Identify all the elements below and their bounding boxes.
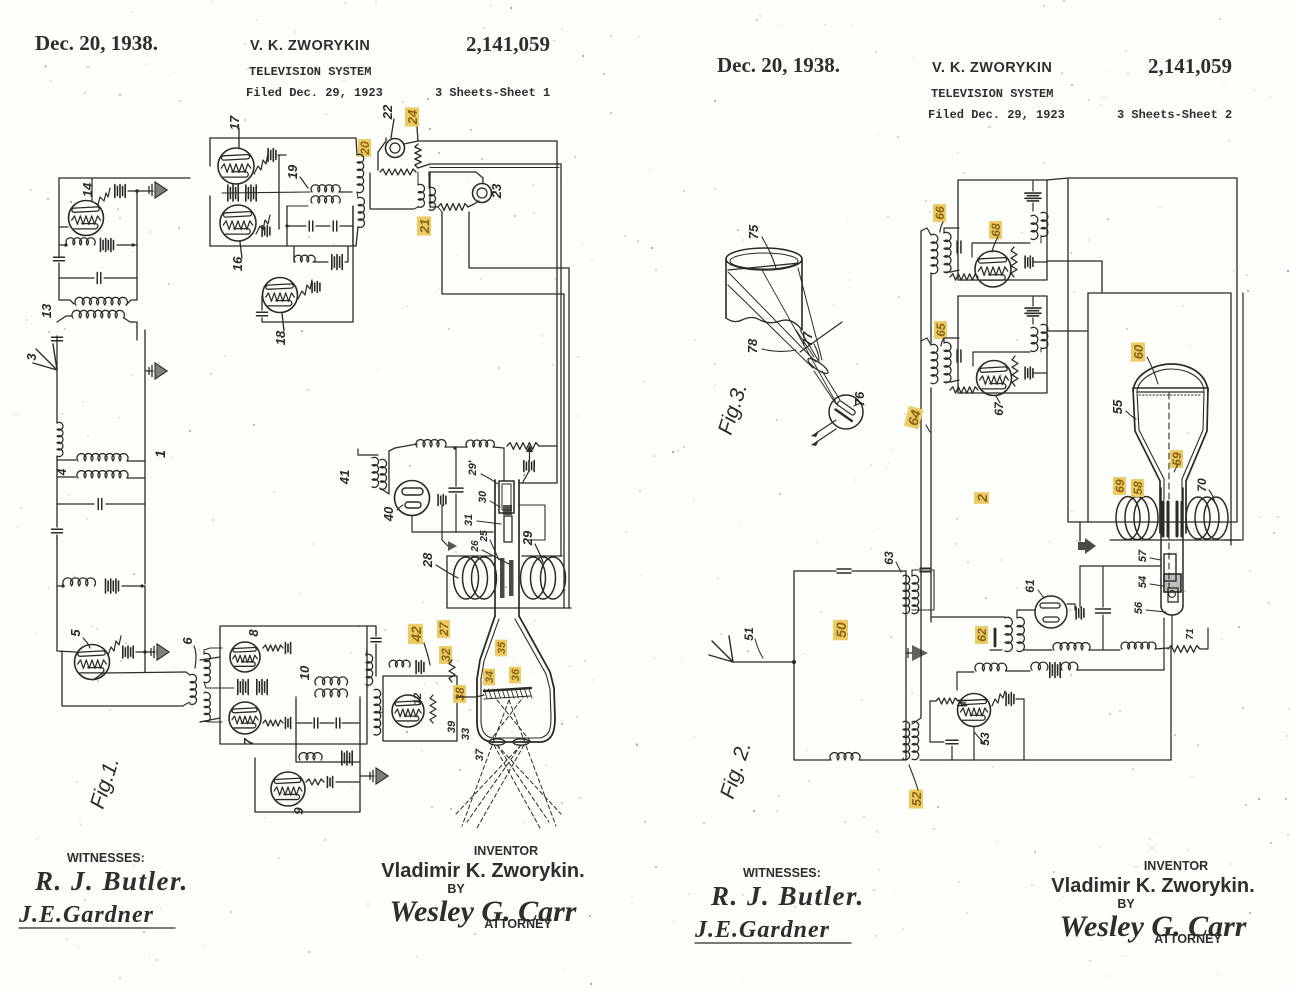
- svg-text:Dec. 20, 1938.: Dec. 20, 1938.: [717, 53, 840, 77]
- svg-text:77: 77: [800, 331, 815, 346]
- svg-text:61: 61: [1023, 579, 1037, 593]
- svg-text:14: 14: [80, 182, 95, 197]
- svg-text:TELEVISION SYSTEM: TELEVISION SYSTEM: [249, 65, 371, 79]
- svg-text:3 Sheets-Sheet 2: 3 Sheets-Sheet 2: [1117, 108, 1232, 122]
- svg-text:Filed Dec. 29, 1923: Filed Dec. 29, 1923: [246, 86, 383, 100]
- svg-text:ATTORNEY: ATTORNEY: [484, 917, 552, 931]
- svg-text:R. J. Butler.: R. J. Butler.: [710, 881, 865, 911]
- svg-text:1: 1: [152, 450, 168, 458]
- svg-text:13: 13: [39, 303, 54, 318]
- svg-text:5: 5: [68, 629, 83, 637]
- svg-text:38: 38: [453, 687, 467, 701]
- svg-text:2,141,059: 2,141,059: [466, 32, 550, 56]
- svg-text:32: 32: [439, 648, 453, 662]
- svg-text:41: 41: [337, 470, 352, 485]
- svg-text:65: 65: [934, 323, 948, 337]
- svg-text:31: 31: [463, 514, 475, 526]
- svg-text:12: 12: [412, 693, 424, 705]
- svg-text:17: 17: [227, 115, 242, 130]
- svg-text:Fig.3.: Fig.3.: [714, 380, 752, 437]
- svg-text:2: 2: [974, 494, 990, 503]
- svg-text:Dec. 20, 1938.: Dec. 20, 1938.: [35, 31, 158, 55]
- svg-text:8: 8: [246, 629, 261, 637]
- svg-text:58: 58: [1131, 481, 1145, 495]
- svg-text:3 Sheets-Sheet 1: 3 Sheets-Sheet 1: [435, 86, 550, 100]
- svg-text:TELEVISION SYSTEM: TELEVISION SYSTEM: [931, 87, 1053, 101]
- svg-text:7: 7: [241, 738, 256, 746]
- svg-text:21: 21: [417, 219, 432, 234]
- svg-text:R. J. Butler.: R. J. Butler.: [34, 866, 189, 896]
- svg-text:3: 3: [24, 353, 39, 361]
- svg-text:75: 75: [746, 224, 761, 239]
- svg-text:24: 24: [405, 109, 420, 125]
- svg-text:9: 9: [291, 807, 306, 815]
- svg-text:19: 19: [285, 164, 300, 179]
- svg-text:18: 18: [273, 330, 288, 345]
- svg-text:39: 39: [446, 720, 458, 733]
- svg-text:52: 52: [909, 791, 924, 806]
- svg-text:29′: 29′: [467, 459, 479, 476]
- svg-text:50: 50: [833, 622, 849, 638]
- svg-text:54: 54: [1137, 576, 1149, 588]
- svg-text:22: 22: [380, 104, 395, 120]
- svg-text:36: 36: [510, 668, 522, 681]
- svg-text:71: 71: [1185, 628, 1196, 640]
- svg-text:69: 69: [1113, 479, 1127, 493]
- svg-text:27: 27: [437, 621, 451, 637]
- svg-text:35: 35: [496, 641, 508, 654]
- svg-text:23: 23: [489, 183, 504, 199]
- svg-text:66: 66: [933, 206, 947, 220]
- svg-text:6: 6: [180, 637, 195, 645]
- svg-text:Filed Dec. 29, 1923: Filed Dec. 29, 1923: [928, 108, 1065, 122]
- svg-text:51: 51: [742, 627, 756, 641]
- svg-text:60: 60: [1131, 344, 1146, 359]
- svg-text:29: 29: [520, 530, 535, 546]
- svg-text:42: 42: [408, 626, 424, 643]
- svg-text:26: 26: [470, 540, 481, 553]
- svg-text:63: 63: [882, 551, 896, 565]
- svg-text:2,141,059: 2,141,059: [1148, 54, 1232, 78]
- svg-text:Fig.1.: Fig.1.: [86, 754, 124, 811]
- svg-text:ATTORNEY: ATTORNEY: [1154, 932, 1222, 946]
- svg-text:BY: BY: [447, 882, 465, 896]
- svg-text:67: 67: [992, 401, 1006, 416]
- svg-text:Vladimir K. Zworykin.: Vladimir K. Zworykin.: [1051, 875, 1254, 897]
- svg-text:WITNESSES:: WITNESSES:: [67, 851, 145, 865]
- svg-text:Fig. 2.: Fig. 2.: [716, 739, 756, 802]
- svg-text:BY: BY: [1117, 897, 1135, 911]
- svg-text:20: 20: [358, 141, 372, 156]
- svg-text:78: 78: [745, 338, 760, 353]
- svg-text:70: 70: [1195, 478, 1209, 492]
- svg-text:Vladimir K. Zworykin.: Vladimir K. Zworykin.: [381, 860, 584, 882]
- svg-text:28: 28: [420, 552, 435, 568]
- svg-text:68: 68: [989, 223, 1003, 237]
- svg-text:55: 55: [1110, 399, 1125, 414]
- svg-text:34: 34: [484, 671, 496, 683]
- svg-text:V. K. ZWORYKIN: V. K. ZWORYKIN: [250, 38, 370, 54]
- svg-text:J.E.Gardner: J.E.Gardner: [18, 902, 154, 928]
- svg-text:J.E.Gardner: J.E.Gardner: [694, 917, 830, 943]
- svg-text:57: 57: [1137, 549, 1149, 562]
- svg-text:33: 33: [460, 728, 472, 740]
- svg-text:40: 40: [381, 506, 396, 522]
- svg-text:59: 59: [1170, 452, 1184, 466]
- svg-text:30: 30: [477, 490, 489, 503]
- svg-text:INVENTOR: INVENTOR: [1144, 859, 1208, 873]
- svg-text:56: 56: [1133, 601, 1145, 614]
- svg-text:WITNESSES:: WITNESSES:: [743, 866, 821, 880]
- svg-text:37: 37: [474, 748, 486, 761]
- svg-text:10: 10: [297, 665, 312, 680]
- svg-text:V. K. ZWORYKIN: V. K. ZWORYKIN: [932, 60, 1052, 76]
- svg-text:INVENTOR: INVENTOR: [474, 844, 538, 858]
- svg-text:62: 62: [975, 628, 989, 642]
- svg-text:16: 16: [230, 256, 245, 271]
